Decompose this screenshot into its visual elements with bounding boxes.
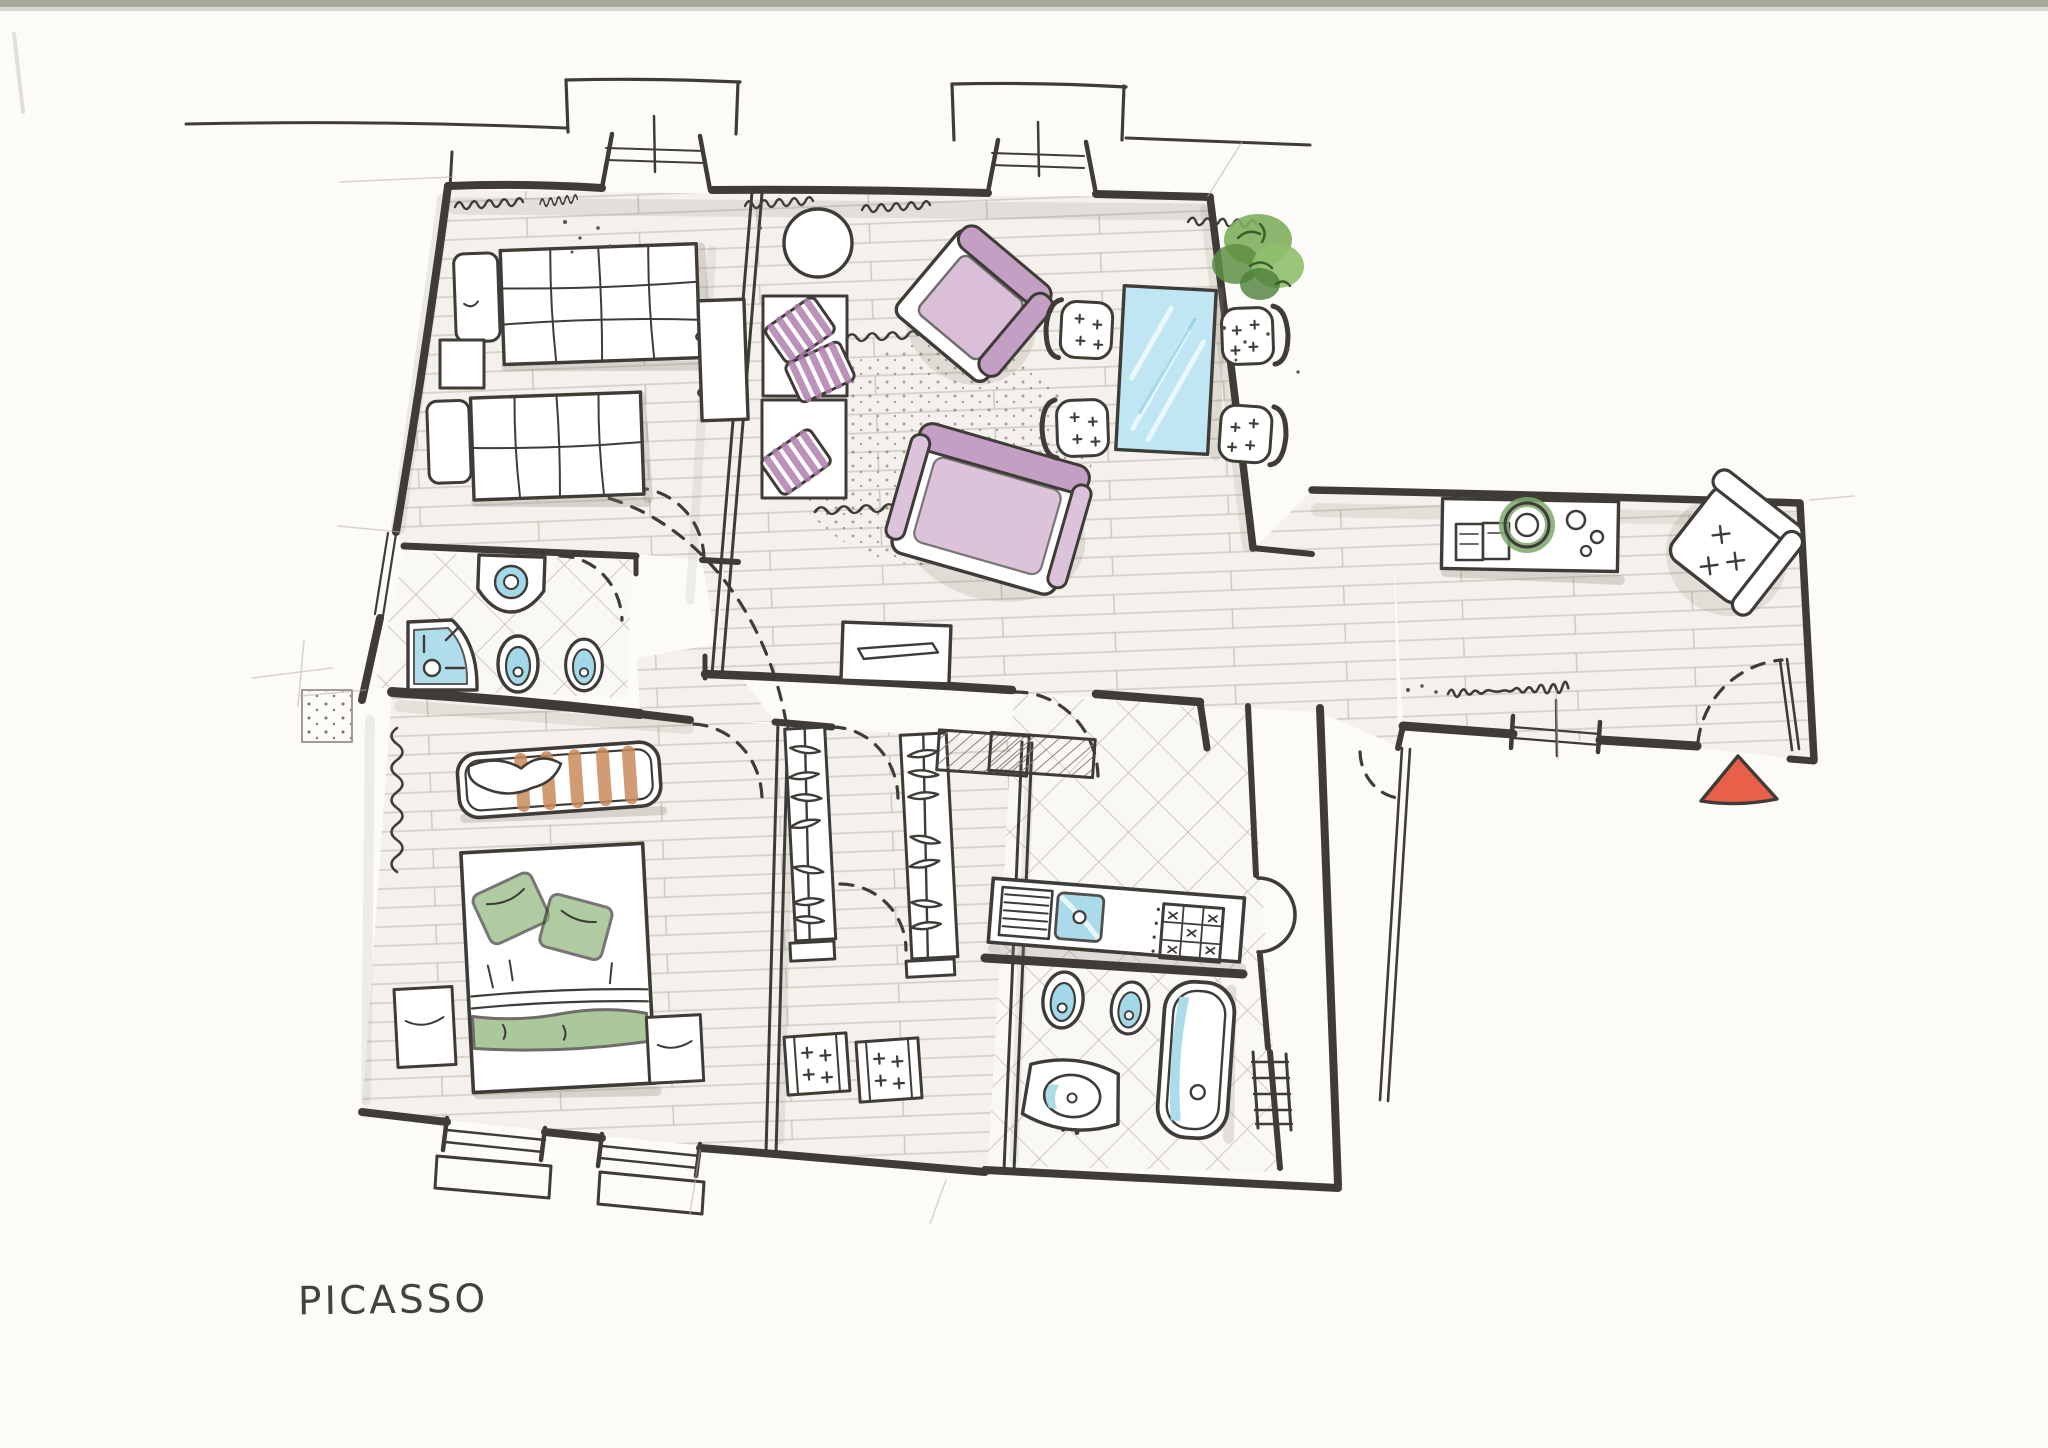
potted-plant [1212,214,1304,300]
bidet [566,639,603,691]
double-bed [461,843,657,1100]
shoe-bench [784,1033,850,1095]
floor-plan-drawing [0,0,2048,1448]
scanned-sketch-page: PICASSO [0,0,2048,1448]
toilet [498,636,538,692]
exterior-walls-and-windows [186,79,1310,194]
nightstand [440,340,484,388]
round-table [784,209,852,277]
nightstand [394,987,456,1068]
kitchen-shelf [989,732,1095,777]
shoe-bench [856,1038,922,1102]
window-bay-1 [566,79,740,190]
dining-chair [1221,306,1289,366]
console-cabinet [695,299,748,421]
bathtub [1156,980,1240,1141]
glass-dining-table [1116,286,1224,455]
entry-arrow [1701,756,1777,804]
plan-title: PICASSO [298,1277,489,1325]
window-bay-2 [952,83,1126,194]
crib [456,741,662,825]
dining-chair [1218,403,1288,465]
nightstand [646,1015,703,1084]
desk [1441,498,1620,580]
scan-artifacts [0,0,2048,112]
tv-console [841,622,951,684]
